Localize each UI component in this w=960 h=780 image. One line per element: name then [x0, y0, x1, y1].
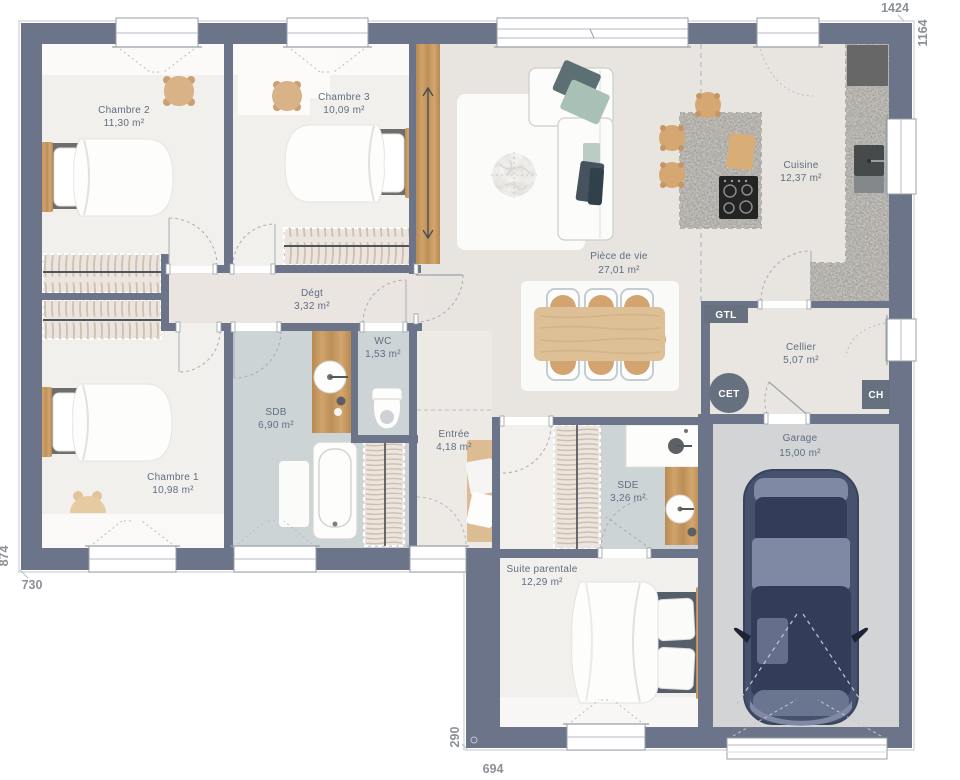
- svg-text:730: 730: [22, 578, 43, 592]
- svg-text:874: 874: [0, 546, 11, 567]
- svg-text:Dégt: Dégt: [301, 288, 323, 299]
- svg-text:WC: WC: [374, 336, 391, 347]
- svg-text:SDB: SDB: [265, 407, 286, 418]
- svg-text:Suite parentale: Suite parentale: [506, 564, 577, 575]
- svg-text:Chambre 1: Chambre 1: [147, 472, 199, 483]
- svg-text:27,01 m²: 27,01 m²: [598, 265, 640, 276]
- svg-text:Cellier: Cellier: [786, 342, 817, 353]
- svg-text:5,07 m²: 5,07 m²: [783, 355, 819, 366]
- svg-text:GTL: GTL: [715, 310, 736, 321]
- svg-text:1424: 1424: [881, 1, 909, 15]
- svg-text:290: 290: [448, 727, 462, 748]
- svg-text:Pièce de vie: Pièce de vie: [590, 251, 648, 262]
- svg-text:12,37 m²: 12,37 m²: [780, 173, 822, 184]
- svg-text:10,98 m²: 10,98 m²: [152, 485, 194, 496]
- svg-text:6,90 m²: 6,90 m²: [258, 420, 294, 431]
- svg-text:11,30 m²: 11,30 m²: [104, 118, 145, 129]
- svg-text:10,09 m²: 10,09 m²: [323, 105, 365, 116]
- svg-text:SDE: SDE: [617, 480, 638, 491]
- svg-text:Chambre 3: Chambre 3: [318, 92, 370, 103]
- svg-text:Cuisine: Cuisine: [783, 160, 818, 171]
- svg-text:3,32 m²: 3,32 m²: [294, 301, 330, 312]
- svg-text:694: 694: [483, 762, 504, 776]
- svg-text:Entrée: Entrée: [439, 429, 470, 440]
- svg-text:15,00 m²: 15,00 m²: [779, 448, 821, 459]
- svg-text:CET: CET: [718, 389, 739, 400]
- svg-text:4,18 m²: 4,18 m²: [436, 442, 472, 453]
- svg-text:1,53 m²: 1,53 m²: [365, 349, 401, 360]
- svg-text:12,29 m²: 12,29 m²: [521, 577, 563, 588]
- svg-text:3,26 m²: 3,26 m²: [610, 493, 646, 504]
- svg-text:CH: CH: [868, 390, 883, 401]
- svg-text:1164: 1164: [916, 19, 930, 46]
- svg-text:Garage: Garage: [783, 433, 818, 444]
- svg-text:Chambre 2: Chambre 2: [98, 105, 150, 116]
